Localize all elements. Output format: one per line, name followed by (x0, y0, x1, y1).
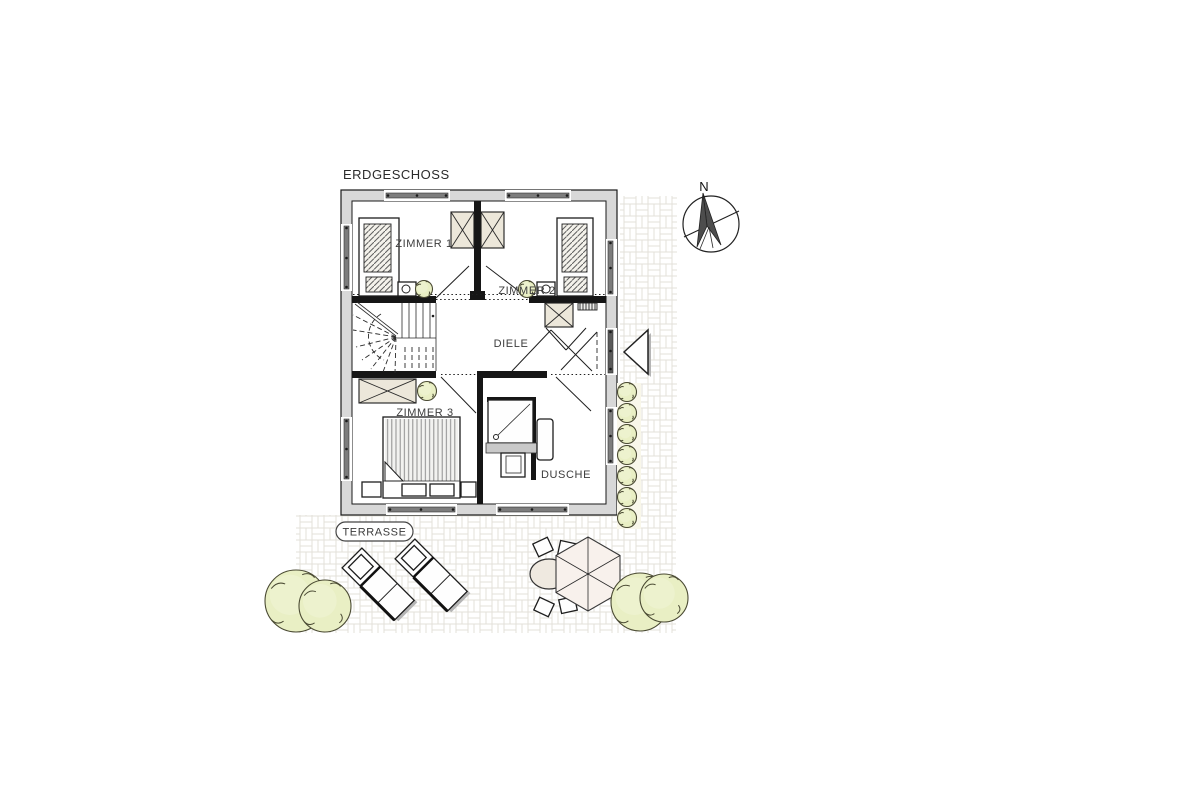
plant-zimmer3 (418, 382, 437, 401)
bed-zimmer2-mattress (562, 224, 587, 272)
divider-wall-foot (470, 291, 485, 300)
zimmer2-bottom-wall (529, 296, 606, 303)
bed-zimmer2-pillow (564, 277, 587, 292)
shower-drain (494, 435, 499, 440)
wardrobe-zimmer2 (481, 212, 504, 248)
window-bottom-zimmer3 (386, 504, 457, 515)
bedroom-divider-wall (474, 201, 481, 299)
wardrobe-zimmer1 (451, 212, 474, 248)
stair-bottom-wall (352, 371, 436, 378)
window-right-dusche (606, 407, 617, 465)
zimmer3-dusche-wall (477, 371, 483, 504)
shower-ledge (486, 443, 537, 453)
heater-dusche (537, 419, 553, 460)
shrub-small-6 (618, 488, 637, 507)
floor-plan-svg: ERDGESCHOSS (0, 0, 1200, 800)
room-label-zimmer1: ZIMMER 1 (395, 238, 452, 250)
window-left-zimmer3 (341, 417, 352, 481)
shrub-small-4 (618, 446, 637, 465)
bed-zimmer1-mattress (364, 224, 391, 272)
bush-right-2 (640, 574, 688, 622)
pillow-left-zimmer3 (402, 484, 426, 496)
bed-zimmer1-pillow (366, 277, 392, 292)
plant-zimmer1 (416, 281, 433, 298)
floor-plan-page: ERDGESCHOSS (0, 0, 1200, 800)
building: ZIMMER 1 ZIMMER 2 ZIMMER 3 DIELE DUSCHE (341, 190, 617, 515)
shrub-small-1 (618, 383, 637, 402)
pillow-right-zimmer3 (430, 484, 454, 496)
nightstand-left-zimmer3 (362, 482, 381, 497)
room-label-zimmer3: ZIMMER 3 (396, 407, 453, 419)
window-right-zimmer2 (606, 239, 617, 296)
shrub-small-3 (618, 425, 637, 444)
bush-left-2 (299, 580, 351, 632)
bed-zimmer3-duvet (385, 419, 458, 481)
window-top-zimmer2 (505, 190, 571, 201)
nightstand-right-zimmer3 (461, 482, 476, 497)
shrub-small-7 (618, 509, 637, 528)
shrub-small-5 (618, 467, 637, 486)
terrace-label-text: TERRASSE (342, 527, 406, 539)
wardrobe-zimmer3 (359, 379, 416, 403)
wardrobe-diele (545, 303, 573, 327)
window-left-zimmer1 (341, 224, 352, 291)
compass: N (683, 179, 739, 252)
room-label-zimmer2: ZIMMER 2 (498, 285, 555, 297)
window-bottom-dusche (496, 504, 569, 515)
lamp-zimmer1 (402, 285, 410, 293)
compass-north-label: N (699, 179, 708, 194)
floor-title: ERDGESCHOSS (343, 167, 450, 182)
radiator-diele (578, 303, 597, 310)
room-label-dusche: DUSCHE (541, 469, 591, 481)
dusche-top-wall (483, 371, 547, 378)
shrub-small-2 (618, 404, 637, 423)
window-top-zimmer1 (384, 190, 450, 201)
terrace-label: TERRASSE (336, 522, 413, 541)
room-label-diele: DIELE (494, 338, 529, 350)
